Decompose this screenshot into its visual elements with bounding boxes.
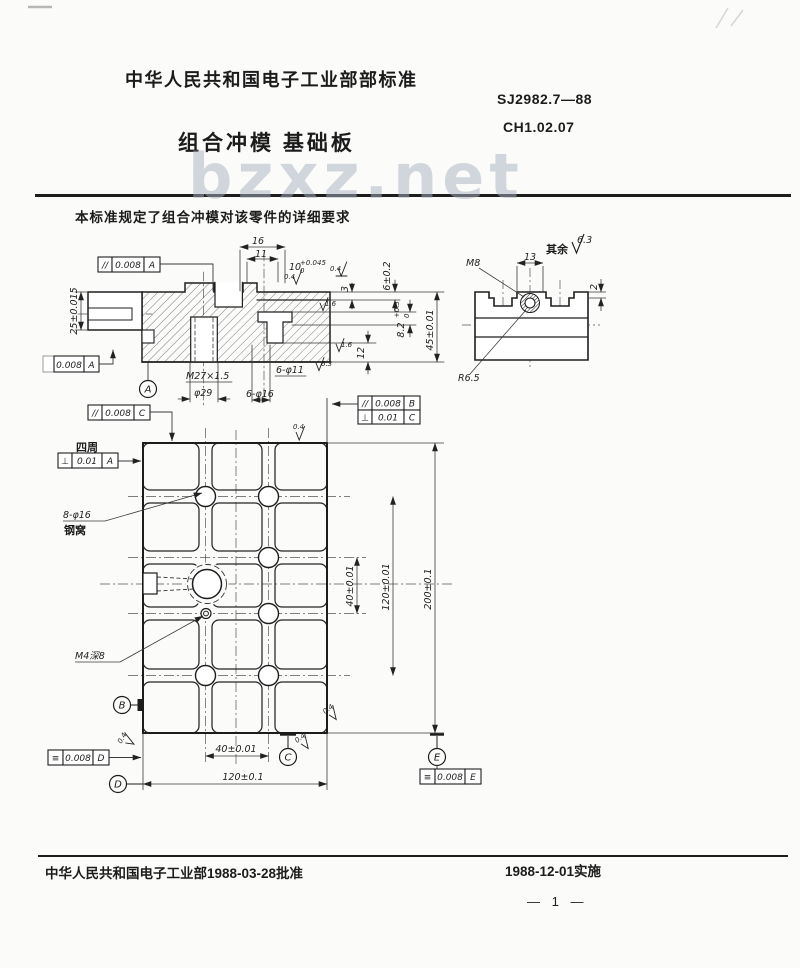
svg-text://: // <box>91 409 99 419</box>
tolerance-frame-parallel-b: // 0.008 B ⊥ 0.01 C <box>327 396 420 443</box>
svg-text:0.4: 0.4 <box>321 703 335 716</box>
tolerance-frame-left: 0.008 A <box>43 350 113 372</box>
footer-divider <box>38 855 788 857</box>
section-view: 16 11 10 +0.045 0 0.4 25±0.015 <box>43 236 444 408</box>
svg-text:A: A <box>148 261 155 271</box>
thread-callout: M27×1.5 <box>186 371 229 382</box>
dim-3: 3 <box>340 286 351 292</box>
svg-text:≡: ≡ <box>424 773 432 783</box>
roughness-mark-icon: 0.4 <box>293 731 312 752</box>
dim-45: 45±0.01 <box>425 309 436 350</box>
top-groove <box>215 282 242 307</box>
implementation-note: 1988-12-01实施 <box>505 860 601 880</box>
dim-82-lower-tol: 0 <box>403 313 411 318</box>
roughness-mark-icon: 0.4 <box>330 262 347 276</box>
tolerance-frame-parallel-c: // 0.008 C <box>88 405 172 441</box>
dim-40-vertical: 40±0.01 <box>345 565 356 606</box>
rest-label: 其余 <box>546 242 569 256</box>
slot-grid-panels <box>143 443 327 733</box>
m8-callout: M8 <box>466 258 480 269</box>
svg-text:0.4: 0.4 <box>293 423 304 431</box>
holes11-callout: 6-φ11 <box>276 365 304 376</box>
svg-text:6.3: 6.3 <box>321 360 332 368</box>
svg-text:0.01: 0.01 <box>378 414 398 424</box>
dim-10-lower-tol: 0 <box>300 267 305 275</box>
standard-number: SJ2982.7—88 <box>497 91 592 107</box>
side-notch <box>142 330 154 343</box>
svg-text:E: E <box>434 753 441 764</box>
svg-text:0.008: 0.008 <box>56 361 82 371</box>
scanned-standard-page: { "header": { "org": "中华人民共和国电子工业部部标准", … <box>0 0 800 968</box>
svg-text:A: A <box>106 457 113 467</box>
side-slot-entry <box>143 573 157 594</box>
ministry-standard-heading: 中华人民共和国电子工业部部标准 <box>125 66 418 92</box>
dim-2: 2 <box>589 284 600 290</box>
svg-text://: // <box>361 400 369 410</box>
radius-callout: R6.5 <box>458 373 480 384</box>
svg-text:1.6: 1.6 <box>325 300 337 308</box>
svg-text:B: B <box>409 400 415 410</box>
svg-text:B: B <box>119 701 126 712</box>
m4-callout: M4深8 <box>75 651 105 662</box>
svg-text:D: D <box>98 754 105 764</box>
dim-120-bottom: 120±0.1 <box>222 772 263 783</box>
roughness-mark-icon: 0.4 <box>293 423 305 440</box>
svg-text:0.008: 0.008 <box>437 773 463 783</box>
holes16-callout: 6-φ16 <box>246 389 274 400</box>
m4-hole <box>201 609 211 619</box>
holes-callout: 8-φ16 <box>63 510 91 521</box>
svg-text:0.4: 0.4 <box>330 265 341 273</box>
svg-text:0.01: 0.01 <box>77 457 97 467</box>
svg-text:E: E <box>470 773 476 783</box>
site-watermark: bzxz.net <box>188 140 524 213</box>
svg-text:≡: ≡ <box>52 754 60 764</box>
dim-120-vertical: 120±0.01 <box>381 563 392 610</box>
datum-d: D <box>110 776 144 793</box>
svg-text:D: D <box>114 780 122 791</box>
svg-text:C: C <box>139 409 146 419</box>
roughness-mark-icon: 1.6 <box>336 339 353 352</box>
classification-number: CH1.02.07 <box>503 119 574 135</box>
approval-note: 中华人民共和国电子工业部1988-03-28批准 <box>45 862 303 882</box>
dim-16: 16 <box>252 236 264 247</box>
svg-text:⊥: ⊥ <box>361 414 369 424</box>
surface-finish-rest: 其余 6.3 <box>546 234 592 256</box>
dim-10-upper-tol: +0.045 <box>300 259 326 267</box>
tolerance-frame-sym-d: ≡ 0.008 D <box>48 750 141 765</box>
dim-25: 25±0.015 <box>69 287 80 334</box>
datum-a: A <box>140 363 157 398</box>
svg-text:1.6: 1.6 <box>341 341 353 349</box>
svg-text:C: C <box>409 414 416 424</box>
center-hole <box>193 570 222 599</box>
dim-13: 13 <box>524 252 536 263</box>
tslot-view: 13 2 M8 R6.5 其余 6.3 <box>458 234 606 384</box>
frame-note: 四周 <box>76 441 98 454</box>
page-number: — 1 — <box>527 894 587 909</box>
technical-drawing: 16 11 10 +0.045 0 0.4 25±0.015 <box>0 225 800 860</box>
svg-text://: // <box>101 261 109 271</box>
svg-text:A: A <box>144 385 152 396</box>
roughness-mark-icon: 0.4 <box>321 702 340 723</box>
svg-text:0.008: 0.008 <box>105 409 131 419</box>
svg-text:C: C <box>285 753 292 764</box>
scan-artifacts <box>0 0 800 60</box>
plan-view: 8-φ16 钢窝 M4深8 40±0.01 120±0.01 200±0.1 4… <box>48 396 481 793</box>
dim-40-bottom: 40±0.01 <box>215 744 256 755</box>
roughness-mark-icon: 0.4 <box>116 731 137 750</box>
datum-b: B <box>114 697 144 714</box>
dim-11: 11 <box>255 249 267 260</box>
svg-text:⊥: ⊥ <box>61 457 69 467</box>
bore-callout: φ29 <box>194 388 212 399</box>
left-boss <box>88 292 142 330</box>
dim-200-vertical: 200±0.1 <box>423 568 434 609</box>
tolerance-frame-sym-e: ≡ 0.008 E <box>420 766 481 785</box>
svg-text:0.4: 0.4 <box>284 273 295 281</box>
dim-12: 12 <box>356 347 367 359</box>
svg-text:0.008: 0.008 <box>65 754 91 764</box>
svg-text:0.008: 0.008 <box>115 261 141 271</box>
svg-text:A: A <box>87 361 94 371</box>
base-plate-outline <box>143 443 327 733</box>
svg-text:0.008: 0.008 <box>375 400 401 410</box>
datum-e: E <box>429 735 446 766</box>
dim-6: 6±0.2 <box>382 261 393 290</box>
holes-callout-note: 钢窝 <box>64 523 86 537</box>
tolerance-frame-perp-a: 四周 ⊥ 0.01 A <box>58 441 141 468</box>
dim-82: 8.2 <box>396 322 407 337</box>
rest-value: 6.3 <box>577 235 592 246</box>
m8-hole <box>525 298 535 308</box>
dim-82-upper-tol: +0.3 <box>393 301 401 318</box>
